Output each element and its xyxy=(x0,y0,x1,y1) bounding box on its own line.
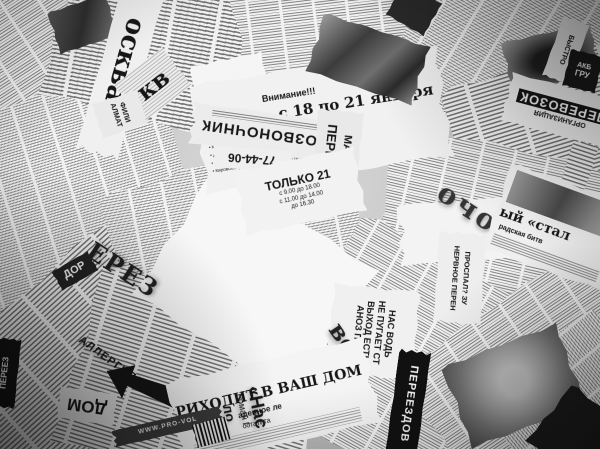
pereez-label: ПЕРЕЕЗ xyxy=(0,357,11,390)
nervnoe-scrap: НЕРВНОЕ ПЕРЕНПРОСПАЛ? ЗУ xyxy=(433,230,487,325)
pereezdov-headline: ПЕРЕЕЗДОВ xyxy=(397,365,419,443)
newspaper-collage-photo: Black-and-white photograph: collage of o… xyxy=(0,0,600,449)
scrap-text: ПРОСПАЛ? ЗУ xyxy=(460,251,472,305)
scraps-layer: осква вквФИЛИАЛМАТВнимание!!!с 18 по 21 … xyxy=(0,0,600,449)
phone-number: 77-44-06 xyxy=(228,151,277,167)
dom-headline: ДОМ xyxy=(66,394,108,417)
scrap-text: ГРУ xyxy=(574,69,590,81)
